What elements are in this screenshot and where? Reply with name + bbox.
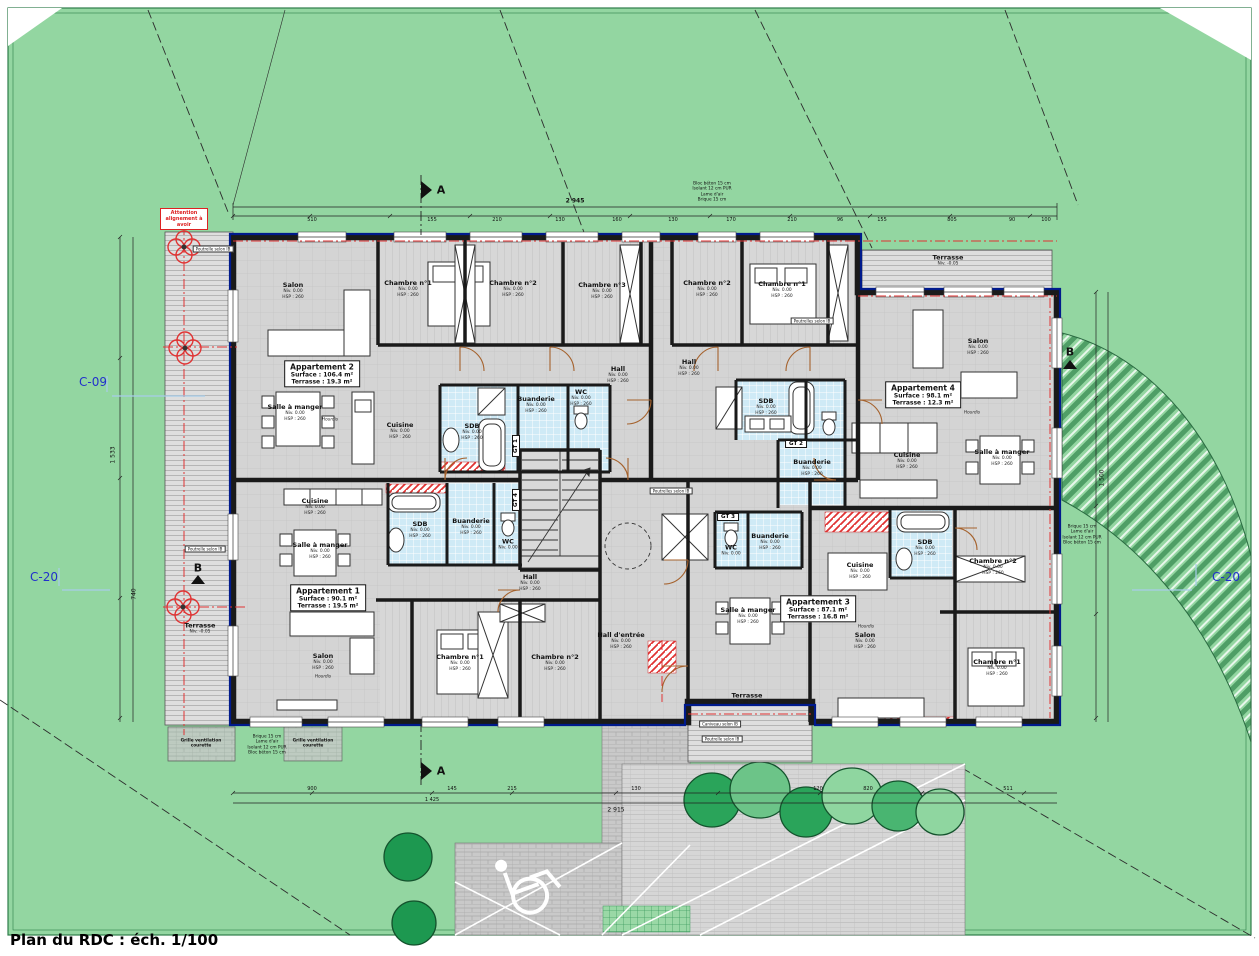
hourdis-tag: Hourdis (964, 410, 980, 415)
apartment-terrace: Terrasse : 12.3 m² (891, 400, 955, 407)
room-name: Chambre n°2 (531, 653, 579, 661)
room-label-salon-apt3: SalonNiv. 0.00HSP : 260 (854, 632, 875, 650)
room-label-chambre2-apt1: Chambre n°2Niv. 0.00HSP : 260 (531, 654, 579, 672)
room-height: HSP : 260 (312, 666, 333, 671)
room-label-wc-apt1: WCNiv. 0.00 (498, 539, 517, 552)
room-label-cuisine-apt3: CuisineNiv. 0.00HSP : 260 (847, 562, 874, 580)
room-name: Terrasse (732, 692, 763, 700)
dim-top-seg: 210 (492, 217, 502, 223)
room-label-chambre1-apt2: Chambre n°1Niv. 0.00HSP : 260 (384, 280, 432, 298)
room-label-buanderie-apt1: BuanderieNiv. 0.00HSP : 260 (452, 518, 490, 536)
room-name: Buanderie (751, 532, 789, 540)
room-label-chambre1-apt3: Chambre n°1Niv. 0.00HSP : 260 (973, 659, 1021, 677)
room-height: HSP : 260 (973, 672, 1021, 677)
room-level: Niv. 0.00 (894, 460, 921, 465)
room-height: HSP : 260 (387, 435, 414, 440)
room-name: SDB (917, 538, 932, 546)
room-height: HSP : 260 (282, 295, 303, 300)
sheet-title: Plan du RDC : éch. 1/100 (10, 931, 218, 949)
room-level: Niv. -0.05 (933, 262, 964, 267)
dim-top-seg: 155 (877, 217, 887, 223)
room-level: Niv. 0.00 (678, 367, 699, 372)
alignment-warning-label: Attention alignement à avoir (160, 208, 208, 230)
dim-bottom-seg: 120 (813, 786, 823, 792)
dim-top-seg: 160 (612, 217, 622, 223)
room-name: Chambre n°2 (969, 557, 1017, 565)
wall-composition-right: Brique 15 cm Lame d'air Isolant 12 cm PU… (1059, 524, 1105, 545)
dim-bottom-seg: 1 425 (425, 797, 439, 803)
room-height: HSP : 260 (531, 667, 579, 672)
apartment-name: Appartement 1 (296, 586, 360, 595)
wall-layer: Bloc béton 15 cm (1059, 540, 1105, 545)
room-level: Niv. -0.05 (732, 700, 763, 705)
room-name: Chambre n°1 (973, 658, 1021, 666)
hourdis-tag: Hourdis (858, 624, 874, 629)
room-label-hall-apt4: HallNiv. 0.00HSP : 260 (678, 359, 699, 377)
room-label-sdb-apt2: SDBNiv. 0.00HSP : 260 (461, 423, 482, 441)
room-name: Hall (682, 358, 696, 366)
apartment-4-info: Appartement 4 Surface : 98.1 m² Terrasse… (885, 381, 961, 408)
grass-paver-strip (603, 906, 690, 932)
room-height: HSP : 260 (967, 351, 988, 356)
room-height: HSP : 260 (975, 462, 1030, 467)
grille-ventilation-note-1: Grille ventilation courette (178, 739, 224, 750)
room-label-hall-apt1: HallNiv. 0.00HSP : 260 (519, 574, 540, 592)
room-label-chambre1-apt1: Chambre n°1Niv. 0.00HSP : 260 (436, 654, 484, 672)
apartment-terrace: Terrasse : 16.8 m² (786, 614, 850, 621)
room-height: HSP : 260 (489, 293, 537, 298)
room-label-sdb-apt4: SDBNiv. 0.00HSP : 260 (755, 398, 776, 416)
room-label-hall-apt2: HallNiv. 0.00HSP : 260 (607, 366, 628, 384)
room-height: HSP : 260 (793, 472, 831, 477)
room-name: Salon (283, 281, 303, 289)
room-label-terrasse-northeast: TerrasseNiv. -0.05 (933, 255, 964, 268)
room-name: SDB (464, 422, 479, 430)
room-name: Chambre n°2 (683, 279, 731, 287)
dim-top-seg: 210 (787, 217, 797, 223)
room-level: Niv. 0.00 (498, 546, 517, 551)
apartment-surface: Surface : 87.1 m² (786, 606, 850, 613)
room-name: Hall d'entrée (597, 631, 644, 639)
room-name: Terrasse (185, 622, 216, 630)
room-level: Niv. 0.00 (755, 406, 776, 411)
room-label-terrasse-west: TerrasseNiv. -0.05 (185, 623, 216, 636)
room-height: HSP : 260 (302, 511, 329, 516)
hourdis-tag: Hourdis (315, 674, 331, 679)
section-b-left-label: B (194, 562, 202, 575)
room-name: Chambre n°1 (758, 280, 806, 288)
room-label-chambre2-apt2: Chambre n°2Niv. 0.00HSP : 260 (489, 280, 537, 298)
dim-left-2: 740 (131, 588, 138, 599)
room-label-chambre2-apt3b: Chambre n°2Niv. 0.00HSP : 260 (969, 558, 1017, 576)
room-label-wc-apt3: WCNiv. 0.00 (721, 545, 740, 558)
room-height: HSP : 260 (384, 293, 432, 298)
room-height: HSP : 260 (578, 295, 626, 300)
dim-top-seg: 805 (947, 217, 957, 223)
room-level: Niv. 0.00 (312, 661, 333, 666)
room-level: Niv. 0.00 (967, 346, 988, 351)
room-label-cuisine-apt1: CuisineNiv. 0.00HSP : 260 (302, 498, 329, 516)
note-poutrelle-1: Poutrelle selon IB (193, 246, 234, 253)
dim-top-seg: 510 (307, 217, 317, 223)
room-level: Niv. 0.00 (914, 547, 935, 552)
apartment-surface: Surface : 90.1 m² (296, 595, 360, 602)
room-name: Cuisine (894, 451, 921, 459)
room-name: Cuisine (387, 421, 414, 429)
staircase (520, 450, 600, 568)
room-name: Salon (968, 337, 988, 345)
dim-bottom-seg: 511 (1003, 786, 1013, 792)
note-poutrelle-2: Poutrelle selon IB (185, 546, 226, 553)
room-height: HSP : 260 (678, 372, 699, 377)
note-poutrelles-2: Poutrelles selon IB (791, 318, 834, 325)
room-height: HSP : 260 (607, 379, 628, 384)
room-level: Niv. 0.00 (607, 374, 628, 379)
room-label-salon-apt4: SalonNiv. 0.00HSP : 260 (967, 338, 988, 356)
note-poutrelles-1: Poutrelles selon IB (650, 488, 693, 495)
room-level: Niv. 0.00 (721, 552, 740, 557)
dim-top-seg: 130 (555, 217, 565, 223)
bush (916, 789, 964, 835)
apartment-name: Appartement 3 (786, 597, 850, 606)
coupe-c20-left-label: C-20 (30, 570, 58, 584)
room-height: HSP : 260 (758, 294, 806, 299)
room-name: WC (725, 544, 737, 552)
terrace-west (165, 232, 233, 725)
room-name: Hall (611, 365, 625, 373)
room-level: Niv. 0.00 (387, 430, 414, 435)
note-caniveau: Caniveau selon IB (699, 721, 741, 728)
room-name: Chambre n°1 (384, 279, 432, 287)
room-level: Niv. 0.00 (570, 397, 591, 402)
room-label-salon-apt2: SalonNiv. 0.00HSP : 260 (282, 282, 303, 300)
room-level: Niv. 0.00 (302, 506, 329, 511)
section-a-top-label: A (437, 184, 446, 197)
room-height: HSP : 260 (452, 531, 490, 536)
dim-right-overall: 1 500 (1099, 469, 1106, 486)
room-label-chambre2-apt3: Chambre n°2Niv. 0.00HSP : 260 (683, 280, 731, 298)
room-label-hall-entree: Hall d'entréeNiv. 0.00HSP : 260 (597, 632, 644, 650)
terrace-south (688, 702, 812, 762)
room-label-buanderie-apt2: BuanderieNiv. 0.00HSP : 260 (517, 396, 555, 414)
tree (392, 901, 436, 945)
room-level: Niv. 0.00 (409, 529, 430, 534)
room-name: SDB (758, 397, 773, 405)
room-height: HSP : 260 (461, 436, 482, 441)
room-name: Salon (855, 631, 875, 639)
dim-top-seg: 96 (837, 217, 843, 223)
room-name: Salle à manger (293, 541, 348, 549)
room-height: HSP : 260 (268, 417, 323, 422)
grille-ventilation-note-2: Grille ventilation courette (290, 739, 336, 750)
room-name: Chambre n°3 (578, 281, 626, 289)
room-name: SDB (412, 520, 427, 528)
dim-top-overall: 2 945 (566, 198, 585, 205)
wall-composition-top: Bloc béton 15 cm Isolant 12 cm PUR Lame … (689, 181, 735, 202)
apartment-terrace: Terrasse : 19.3 m² (290, 379, 354, 386)
room-label-chambre1-apt4: Chambre n°1Niv. 0.00HSP : 260 (758, 281, 806, 299)
apartment-name: Appartement 2 (290, 362, 354, 371)
room-name: Chambre n°1 (436, 653, 484, 661)
room-label-wc-apt2: WCNiv. 0.00HSP : 260 (570, 389, 591, 407)
room-label-cuisine-apt2: CuisineNiv. 0.00HSP : 260 (387, 422, 414, 440)
room-label-salon-apt1: SalonNiv. 0.00HSP : 260 (312, 653, 333, 671)
room-label-salle-a-manger-apt2: Salle à mangerNiv. 0.00HSP : 260 (268, 404, 323, 422)
room-name: Hall (523, 573, 537, 581)
room-name: Salle à manger (721, 606, 776, 614)
room-level: Niv. 0.00 (847, 570, 874, 575)
room-name: WC (575, 388, 587, 396)
dim-top-seg: 100 (1041, 217, 1051, 223)
wall-layer: Brique 15 cm (689, 197, 735, 202)
gt1-label: GT 1 (512, 435, 520, 457)
room-name: Buanderie (517, 395, 555, 403)
dim-bottom-seg: 145 (447, 786, 457, 792)
room-level: Niv. 0.00 (854, 640, 875, 645)
dim-top-seg: 90 (1009, 217, 1015, 223)
wall-layer: Isolant 12 cm PUR (689, 187, 735, 192)
room-height: HSP : 260 (751, 546, 789, 551)
hourdis-tag: Hourdis (322, 417, 338, 422)
dim-bottom-seg: 820 (863, 786, 873, 792)
room-height: HSP : 260 (436, 667, 484, 672)
note-poutrelle-3: Poutrelle selon IB (702, 736, 743, 743)
room-name: Salle à manger (268, 403, 323, 411)
room-height: HSP : 260 (409, 534, 430, 539)
dim-top-seg: 155 (427, 217, 437, 223)
wall-layer: Bloc béton 15 cm (244, 750, 290, 755)
room-height: HSP : 260 (854, 645, 875, 650)
room-height: HSP : 260 (597, 645, 644, 650)
room-height: HSP : 260 (847, 575, 874, 580)
room-name: Cuisine (847, 561, 874, 569)
room-level: Niv. -0.05 (185, 630, 216, 635)
wall-composition-bottom: Brique 15 cm Lame d'air Isolant 12 cm PU… (244, 734, 290, 755)
room-height: HSP : 260 (721, 620, 776, 625)
dim-top-seg: 130 (668, 217, 678, 223)
tree (384, 833, 432, 881)
room-name: Salon (313, 652, 333, 660)
room-height: HSP : 260 (755, 411, 776, 416)
dim-bottom-seg: 130 (631, 786, 641, 792)
room-name: Buanderie (452, 517, 490, 525)
gt4-label: GT 4 (512, 489, 520, 511)
room-name: Cuisine (302, 497, 329, 505)
floor-plan-drawing (0, 0, 1259, 956)
room-height: HSP : 260 (914, 552, 935, 557)
room-label-buanderie-apt3: BuanderieNiv. 0.00HSP : 260 (751, 533, 789, 551)
room-height: HSP : 260 (969, 571, 1017, 576)
room-label-salle-a-manger-apt1: Salle à mangerNiv. 0.00HSP : 260 (293, 542, 348, 560)
dim-left-overall: 1 533 (110, 446, 117, 463)
room-name: Chambre n°2 (489, 279, 537, 287)
apartment-2-info: Appartement 2 Surface : 106.4 m² Terrass… (284, 360, 360, 387)
apartment-surface: Surface : 98.1 m² (891, 392, 955, 399)
gt3-label: GT 3 (717, 513, 739, 521)
dim-bottom-overall: 2 915 (607, 807, 624, 814)
room-level: Niv. 0.00 (519, 582, 540, 587)
room-name: Buanderie (793, 458, 831, 466)
section-a-bottom-label: A (437, 765, 446, 778)
room-name: WC (502, 538, 514, 546)
gt2-label: GT 2 (785, 440, 807, 448)
room-name: Salle à manger (975, 448, 1030, 456)
section-b-right-label: B (1066, 346, 1074, 359)
apartment-terrace: Terrasse : 19.5 m² (296, 603, 360, 610)
room-label-terrasse-south: TerrasseNiv. -0.05 (732, 693, 763, 706)
room-label-buanderie-apt4: BuanderieNiv. 0.00HSP : 260 (793, 459, 831, 477)
room-height: HSP : 260 (683, 293, 731, 298)
dim-bottom-seg: 215 (507, 786, 517, 792)
room-height: HSP : 260 (517, 409, 555, 414)
apartment-name: Appartement 4 (891, 383, 955, 392)
apartment-1-info: Appartement 1 Surface : 90.1 m² Terrasse… (290, 584, 366, 611)
room-name: Terrasse (933, 254, 964, 262)
floor-plan-sheet: Appartement 2 Surface : 106.4 m² Terrass… (0, 0, 1259, 956)
room-label-salle-a-manger-apt3: Salle à mangerNiv. 0.00HSP : 260 (721, 607, 776, 625)
room-height: HSP : 260 (519, 587, 540, 592)
coupe-c09-label: C-09 (79, 375, 107, 389)
apartment-surface: Surface : 106.4 m² (290, 371, 354, 378)
coupe-c20-right-label: C-20 (1212, 570, 1240, 584)
room-height: HSP : 260 (293, 555, 348, 560)
apartment-3-info: Appartement 3 Surface : 87.1 m² Terrasse… (780, 595, 856, 622)
bush (822, 768, 882, 824)
room-label-sdb-apt1: SDBNiv. 0.00HSP : 260 (409, 521, 430, 539)
room-label-chambre3-apt2: Chambre n°3Niv. 0.00HSP : 260 (578, 282, 626, 300)
room-level: Niv. 0.00 (461, 431, 482, 436)
room-label-cuisine-apt4: CuisineNiv. 0.00HSP : 260 (894, 452, 921, 470)
room-label-sdb-apt3: SDBNiv. 0.00HSP : 260 (914, 539, 935, 557)
room-level: Niv. 0.00 (282, 290, 303, 295)
dim-top-seg: 170 (726, 217, 736, 223)
room-label-salle-a-manger-apt4: Salle à mangerNiv. 0.00HSP : 260 (975, 449, 1030, 467)
room-height: HSP : 260 (894, 465, 921, 470)
dim-bottom-seg: 900 (307, 786, 317, 792)
room-height: HSP : 260 (570, 402, 591, 407)
